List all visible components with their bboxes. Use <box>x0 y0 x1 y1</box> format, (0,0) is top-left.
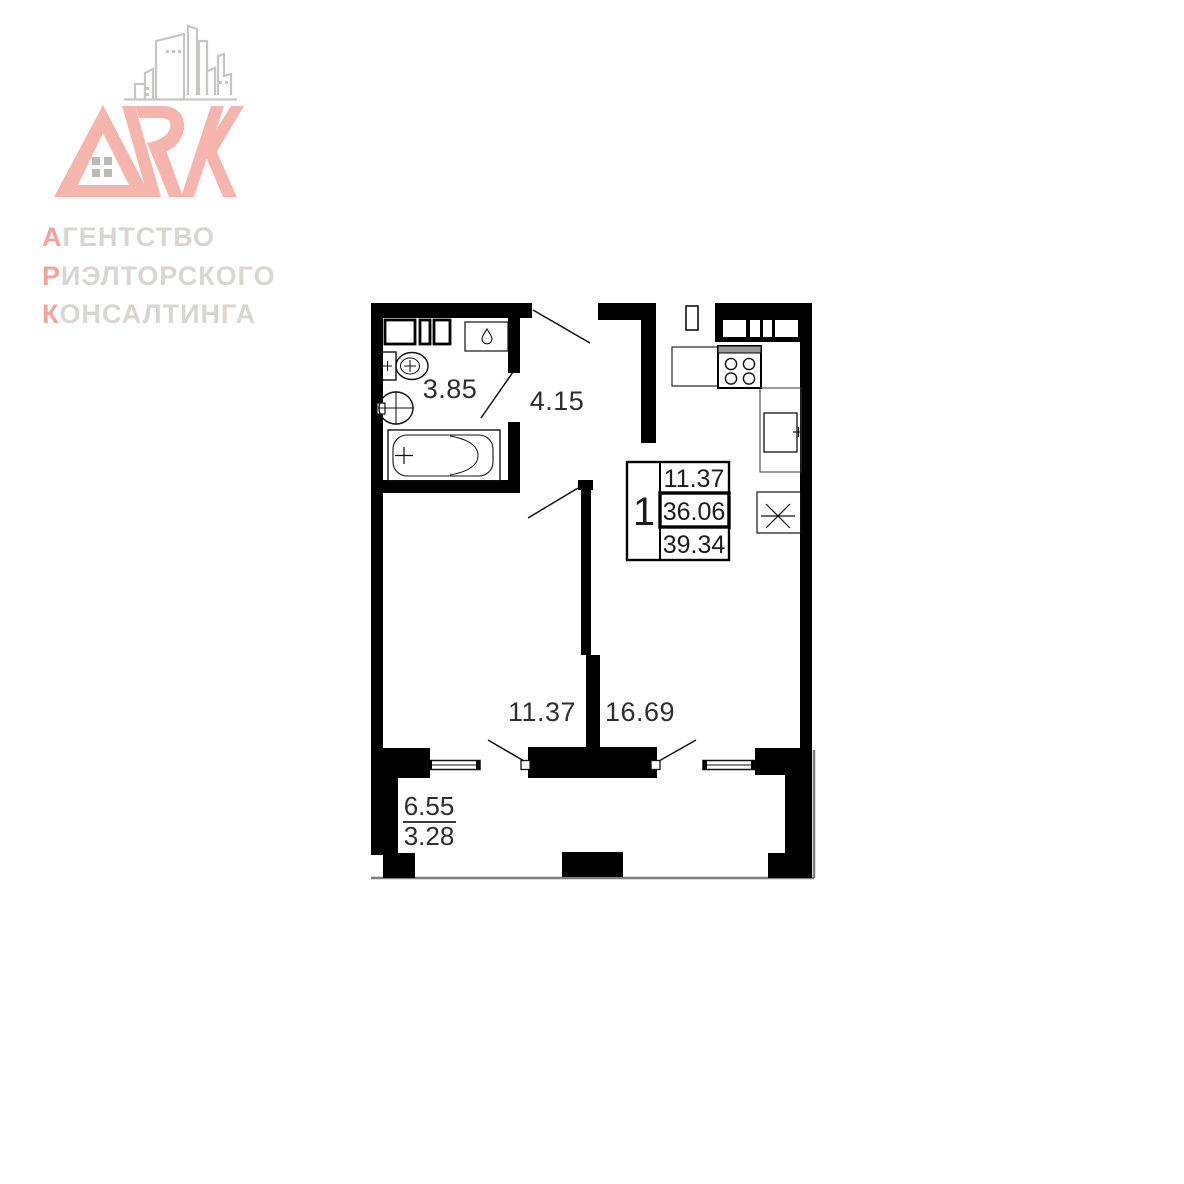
stove-icon <box>718 346 761 388</box>
balcony-door-threshold-left <box>521 761 530 770</box>
area-without-balcony-value: 36.06 <box>663 498 726 526</box>
apartment-info-table: 1 11.37 36.06 39.34 <box>627 462 729 560</box>
balcony-door-threshold-right <box>651 761 660 770</box>
room-area-label: 11.37 <box>508 697 576 727</box>
wall-mid-lower <box>586 655 600 749</box>
appliance-x-icon <box>757 492 801 533</box>
window-left <box>428 761 480 770</box>
wall-top-left <box>371 303 532 318</box>
hallway-area-label: 4.15 <box>530 386 585 416</box>
ark-monogram-icon <box>54 105 244 197</box>
balcony-door-swing-left <box>488 740 524 761</box>
living-area-value: 11.37 <box>664 465 725 493</box>
wall-left-balcony-pier <box>371 778 398 855</box>
wall-bath-bottom <box>371 480 520 493</box>
kitchen-area-label: 16.69 <box>605 697 675 727</box>
counter-column <box>760 388 801 472</box>
cabinets-icon <box>385 320 450 344</box>
entrance-door-swing <box>533 310 590 343</box>
wall-bath-right-lower <box>508 422 520 482</box>
bathroom-door-swing <box>481 372 513 418</box>
logo-line-2: РИЭЛТОРСКОГО <box>42 261 276 291</box>
balcony-door-swing-right <box>659 740 696 761</box>
wall-top-middle <box>598 303 656 320</box>
wall-bottom-left-segment <box>371 748 430 778</box>
bathroom-area-label: 3.85 <box>423 374 478 404</box>
kitchen-counter <box>672 347 719 386</box>
balcony-area-fraction: 6.55 3.28 <box>403 791 456 851</box>
wall-right-balcony-pier <box>785 775 812 855</box>
wall-bottom-central-block <box>528 747 657 778</box>
room-door-swing <box>528 488 578 518</box>
wall-mid-cap <box>578 480 593 490</box>
balcony-corner-left <box>383 853 415 878</box>
wall-mid-upper <box>581 489 591 655</box>
kitchen-sink-icon <box>764 413 804 452</box>
wall-hall-kitchen-divider <box>641 318 656 443</box>
wall-bath-right-upper <box>508 318 520 373</box>
toilet-icon <box>379 352 428 380</box>
balcony-reduced-area: 3.28 <box>404 821 455 851</box>
wall-right <box>800 303 812 750</box>
total-area-value: 39.34 <box>663 531 726 559</box>
balcony-total-area: 6.55 <box>404 791 455 821</box>
balcony-corner-right <box>768 853 812 878</box>
wall-bottom-right-segment <box>755 748 812 775</box>
logo-line-3: КОНСАЛТИНГА <box>42 299 256 329</box>
floorplan-canvas: АГЕНТСТВО РИЭЛТОРСКОГО КОНСАЛТИНГА <box>0 0 1184 1184</box>
agency-logo: АГЕНТСТВО РИЭЛТОРСКОГО КОНСАЛТИНГА <box>42 26 276 329</box>
window-right <box>703 761 755 770</box>
logo-line-1: АГЕНТСТВО <box>42 222 215 252</box>
vent-pipe <box>686 306 698 330</box>
rooms-count: 1 <box>633 490 655 534</box>
balcony-pier-middle <box>562 852 623 877</box>
floor-plan: 1 11.37 36.06 39.34 3.85 4.15 11.37 16.6… <box>371 303 814 878</box>
water-heater-icon <box>465 322 508 351</box>
bathtub-icon <box>388 430 500 481</box>
buildings-icon <box>124 26 237 100</box>
page: АГЕНТСТВО РИЭЛТОРСКОГО КОНСАЛТИНГА <box>0 0 1184 1184</box>
ark-window-grid-icon <box>92 157 112 177</box>
